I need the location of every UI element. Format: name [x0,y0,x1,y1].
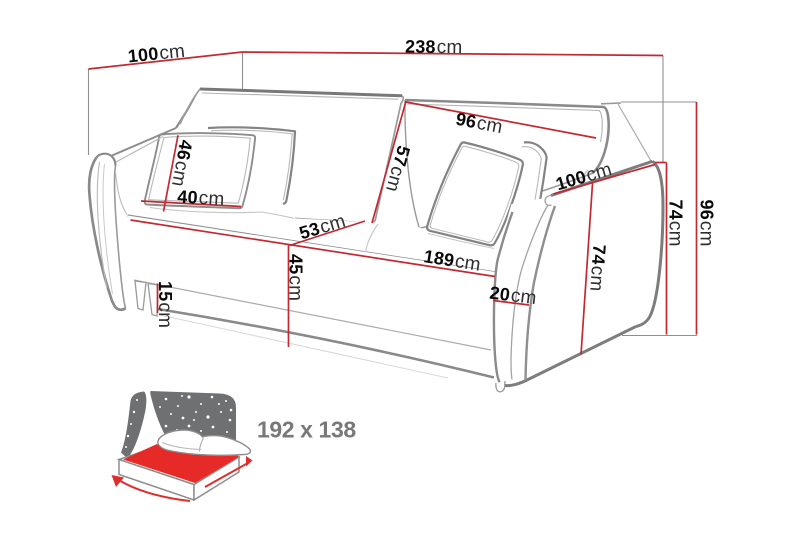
svg-text:96cm: 96cm [696,200,717,247]
svg-text:74cm: 74cm [665,200,686,247]
svg-text:192 x 138: 192 x 138 [257,417,356,443]
svg-text:45cm: 45cm [285,254,306,301]
svg-text:15cm: 15cm [154,281,175,328]
svg-text:238cm: 238cm [405,37,463,59]
svg-text:40cm: 40cm [177,187,225,211]
